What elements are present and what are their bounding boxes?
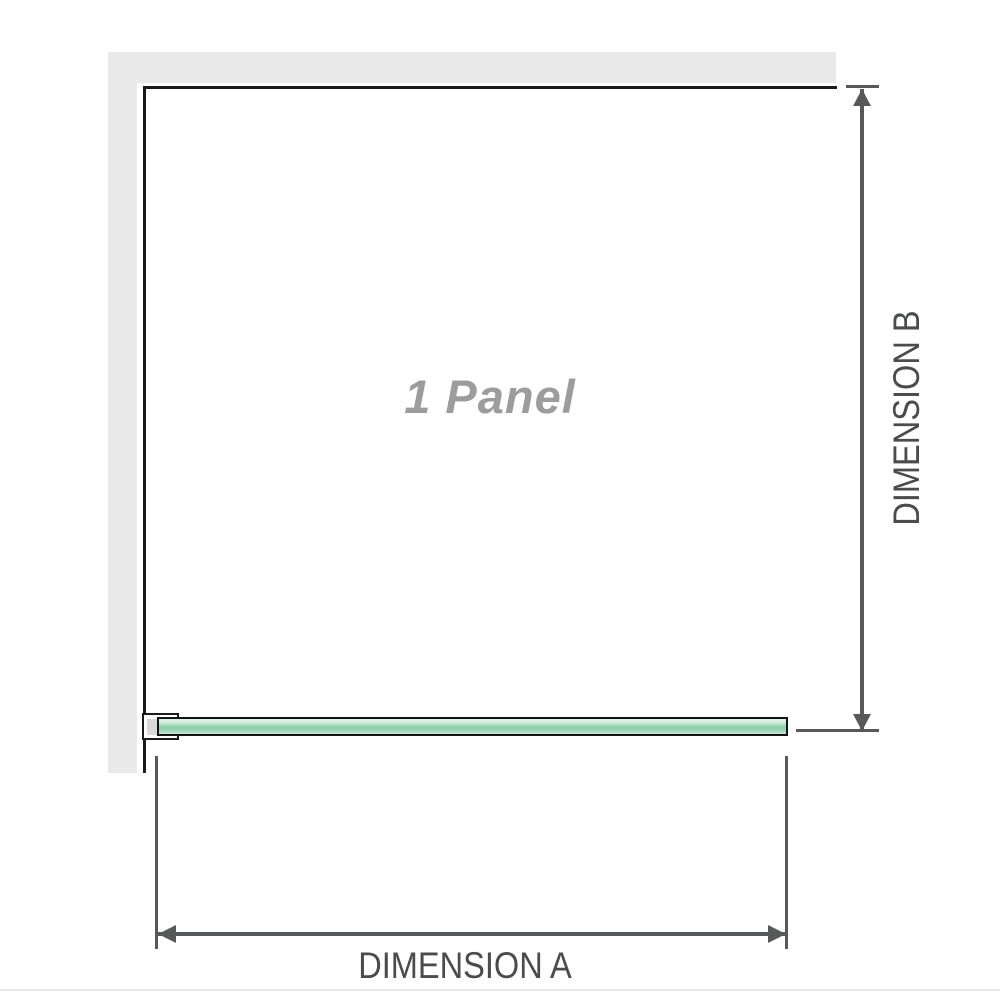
dimension-a-extension-left xyxy=(155,756,158,949)
panel-count-label: 1 Panel xyxy=(143,372,837,422)
dimension-a-arrowhead-right-icon xyxy=(768,925,786,943)
panel-border-left xyxy=(143,86,146,773)
page-bottom-rule xyxy=(0,989,1000,991)
dimension-b-tick-top xyxy=(846,85,879,88)
panel-dimension-diagram: 1 Panel DIMENSION B DIMENSION A xyxy=(0,0,1000,1000)
dimension-b-arrowhead-down-icon xyxy=(853,714,871,731)
dimension-b-line xyxy=(860,89,864,732)
dimension-b-arrowhead-up-icon xyxy=(853,89,871,106)
bracket-channel xyxy=(147,719,157,735)
glass-panel xyxy=(157,717,788,736)
dimension-a-line xyxy=(158,932,786,936)
wall-side xyxy=(108,52,137,773)
wall-top xyxy=(108,52,836,83)
panel-border-top xyxy=(143,86,837,89)
dimension-a-arrowhead-left-icon xyxy=(158,925,176,943)
dimension-b-label: DIMENSION B xyxy=(886,310,928,525)
dimension-a-extension-right xyxy=(785,756,788,949)
dimension-a-label: DIMENSION A xyxy=(358,945,571,987)
